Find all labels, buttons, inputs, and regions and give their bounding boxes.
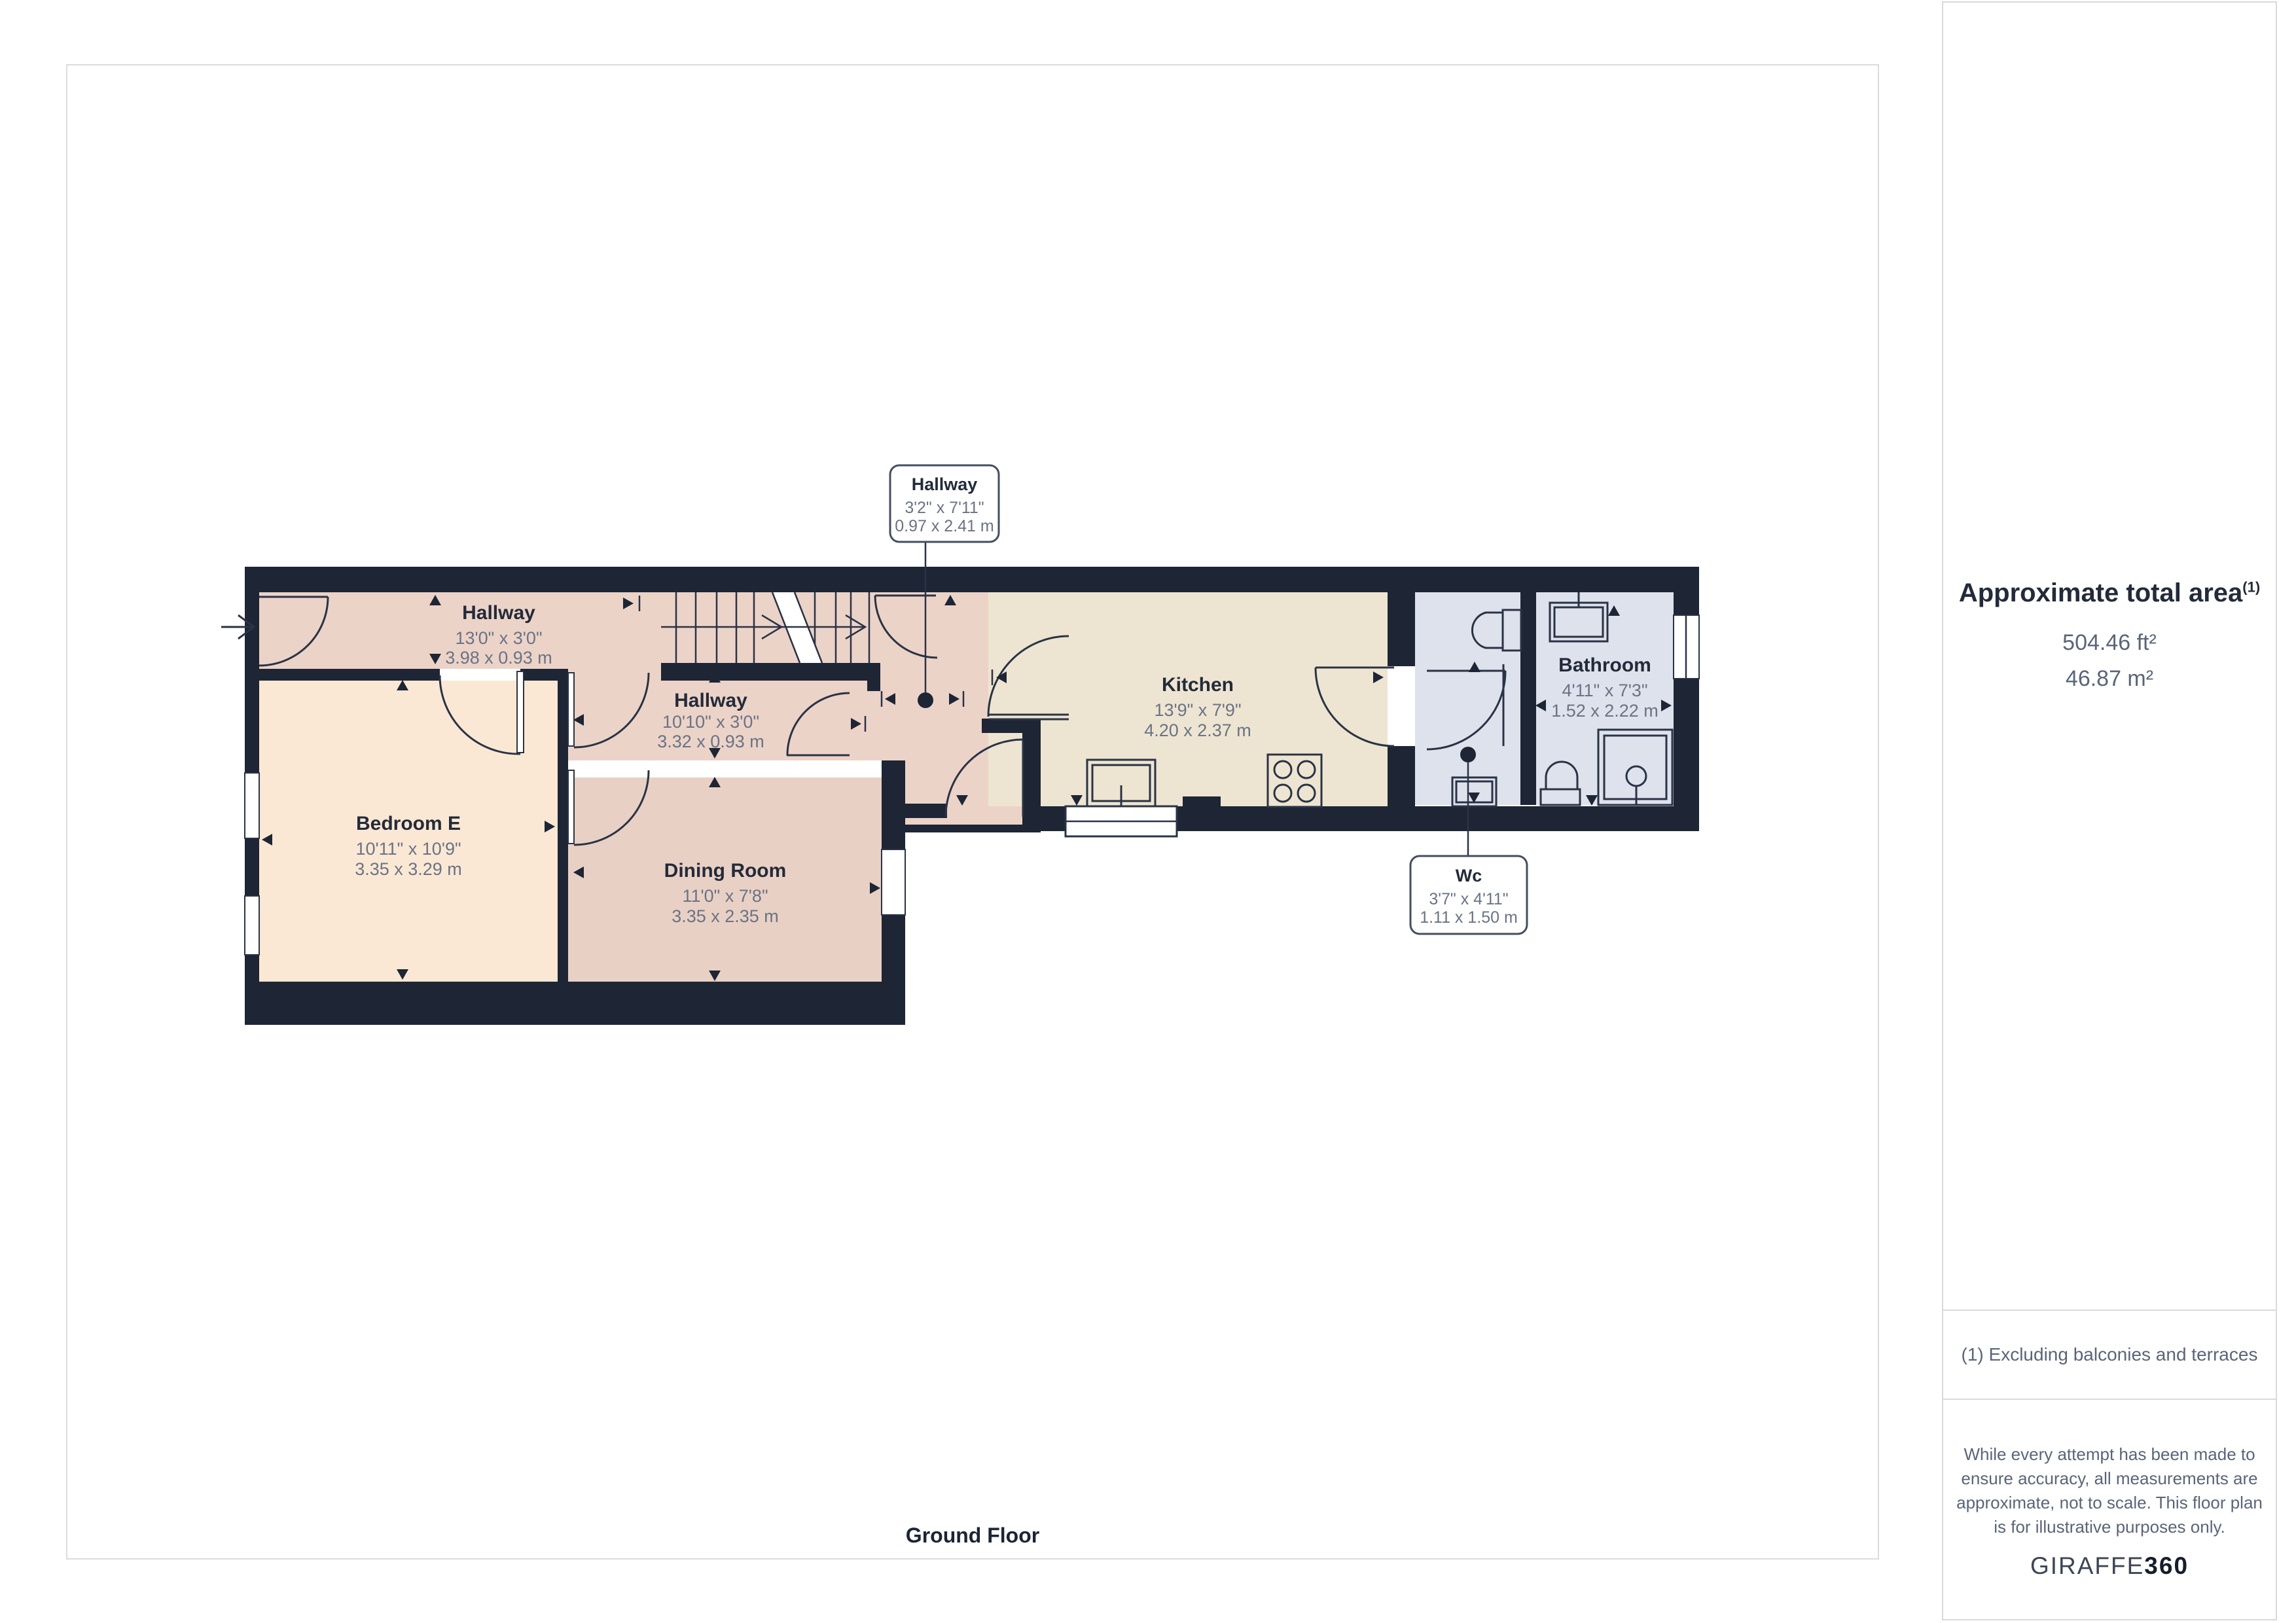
room-imperial: 4'11" x 7'3" <box>1562 681 1647 700</box>
disclaimer: While every attempt has been made to ens… <box>1956 1442 2263 1539</box>
brand-name: GIRAFFE <box>2030 1552 2144 1579</box>
info-panel: Approximate total area(1) 504.46 ft² 46.… <box>1942 1 2277 1620</box>
callout-name: Wc <box>1456 866 1482 885</box>
callout-wc: Wc 3'7" x 4'11" 1.11 x 1.50 m <box>1410 856 1527 934</box>
callout-imperial: 3'7" x 4'11" <box>1429 890 1508 908</box>
callout-metric: 0.97 x 2.41 m <box>895 517 994 535</box>
room-name: Hallway <box>462 602 535 624</box>
callout-name: Hallway <box>912 474 978 494</box>
room-imperial: 13'9" x 7'9" <box>1154 700 1241 720</box>
callout-metric: 1.11 x 1.50 m <box>1420 908 1518 927</box>
room-metric: 4.20 x 2.37 m <box>1144 721 1251 740</box>
floor-title: Ground Floor <box>66 1524 1879 1548</box>
room-metric: 1.52 x 2.22 m <box>1551 701 1659 721</box>
total-area-block: Approximate total area(1) 504.46 ft² 46.… <box>1943 579 2276 702</box>
footnote-marker: (1) <box>2242 579 2260 596</box>
room-imperial: 10'11" x 10'9" <box>355 839 461 859</box>
room-imperial: 11'0" x 7'8" <box>682 886 768 906</box>
room-label-dining: Dining Room 11'0" x 7'8" 3.35 x 2.35 m <box>664 860 787 926</box>
room-metric: 3.98 x 0.93 m <box>445 648 552 668</box>
room-imperial: 13'0" x 3'0" <box>455 628 542 648</box>
footnote: (1) Excluding balconies and terraces <box>1943 1310 2276 1400</box>
area-title-text: Approximate total area <box>1959 579 2242 607</box>
room-name: Hallway <box>674 690 747 711</box>
room-imperial: 10'10" x 3'0" <box>662 712 759 732</box>
area-sqm: 46.87 m² <box>1943 666 2276 692</box>
room-metric: 3.35 x 2.35 m <box>672 906 779 926</box>
brand-suffix: 360 <box>2144 1552 2189 1579</box>
room-name: Bedroom E <box>356 813 461 834</box>
brand-logo: GIRAFFE360 <box>1943 1552 2276 1580</box>
room-name: Dining Room <box>664 860 787 882</box>
callout-hallway: Hallway 3'2" x 7'11" 0.97 x 2.41 m <box>890 465 999 542</box>
callout-imperial: 3'2" x 7'11" <box>905 499 984 517</box>
room-metric: 3.32 x 0.93 m <box>657 732 764 751</box>
area-sqft: 504.46 ft² <box>1943 630 2276 656</box>
room-name: Bathroom <box>1558 654 1651 676</box>
room-label-bedroom-e: Bedroom E 10'11" x 10'9" 3.35 x 3.29 m <box>355 813 462 879</box>
area-title: Approximate total area(1) <box>1943 579 2276 608</box>
room-name: Kitchen <box>1162 674 1234 696</box>
room-label-bathroom: Bathroom 4'11" x 7'3" 1.52 x 2.22 m <box>1551 654 1659 721</box>
room-metric: 3.35 x 3.29 m <box>355 859 462 879</box>
